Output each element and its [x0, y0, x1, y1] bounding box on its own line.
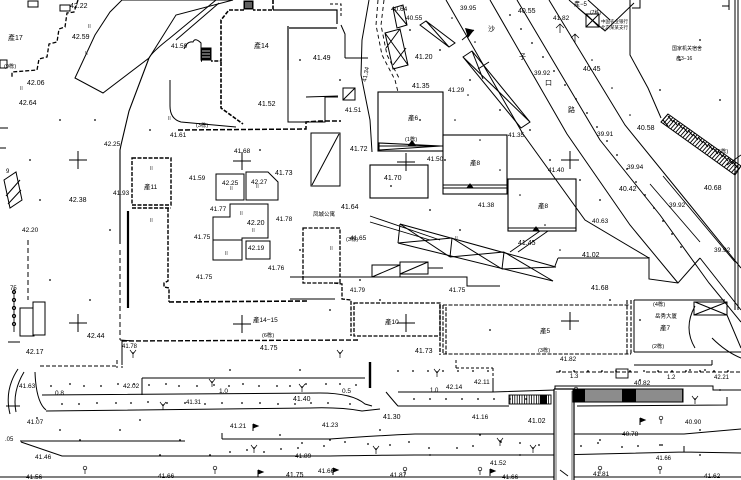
svg-text:41.20: 41.20: [415, 54, 433, 61]
svg-text:40.55: 40.55: [406, 15, 423, 22]
svg-text:41.35: 41.35: [412, 83, 430, 90]
svg-text:42.64: 42.64: [19, 100, 37, 107]
svg-text:41.02: 41.02: [528, 418, 546, 425]
svg-text:產7: 產7: [660, 323, 671, 332]
svg-text:42.14: 42.14: [446, 384, 463, 391]
svg-text:40.58: 40.58: [637, 125, 655, 132]
svg-text:41.63: 41.63: [19, 383, 36, 390]
svg-text:II: II: [230, 186, 233, 192]
svg-text:41.07: 41.07: [27, 419, 44, 426]
svg-text:42.25: 42.25: [104, 141, 121, 148]
svg-text:41.68: 41.68: [591, 285, 609, 292]
svg-text:41.59: 41.59: [189, 175, 206, 182]
svg-text:40.55: 40.55: [518, 8, 536, 15]
svg-text:39.91: 39.91: [597, 131, 614, 138]
svg-text:41.46: 41.46: [35, 454, 52, 461]
svg-text:0.8: 0.8: [55, 390, 64, 397]
svg-text:II: II: [85, 51, 88, 57]
svg-text:41.89: 41.89: [295, 453, 312, 460]
svg-text:40.42: 40.42: [619, 186, 637, 193]
svg-text:0.5: 0.5: [342, 388, 351, 395]
svg-text:41.78: 41.78: [122, 344, 138, 350]
svg-text:沙: 沙: [488, 25, 495, 33]
svg-text:41.29: 41.29: [448, 87, 465, 94]
svg-text:1.3: 1.3: [570, 374, 579, 380]
svg-text:II: II: [150, 218, 153, 224]
svg-text:42.20: 42.20: [22, 227, 39, 234]
svg-text:(3栋): (3栋): [346, 235, 358, 243]
svg-text:42.44: 42.44: [87, 333, 105, 340]
svg-text:41.56: 41.56: [26, 474, 43, 480]
svg-text:41.49: 41.49: [313, 55, 331, 62]
svg-text:產14: 產14: [254, 41, 269, 50]
svg-text:41.31: 41.31: [186, 400, 202, 406]
svg-text:(3栋): (3栋): [196, 121, 208, 129]
svg-text:41.45: 41.45: [518, 240, 536, 247]
svg-text:41.72: 41.72: [350, 146, 368, 153]
svg-text:40.68: 40.68: [704, 185, 722, 192]
svg-text:42.06: 42.06: [27, 80, 45, 87]
svg-text:II: II: [88, 24, 91, 30]
svg-text:41.75: 41.75: [194, 234, 211, 241]
svg-text:41.61: 41.61: [170, 132, 187, 139]
svg-text:41.66: 41.66: [318, 468, 335, 475]
svg-text:42.11: 42.11: [474, 379, 490, 386]
svg-text:40.45: 40.45: [583, 66, 601, 73]
svg-text:41.77: 41.77: [210, 206, 227, 213]
svg-text:41.87: 41.87: [390, 472, 407, 479]
svg-text:41.66: 41.66: [656, 456, 672, 462]
svg-text:II: II: [20, 86, 23, 92]
svg-text:41.30: 41.30: [383, 414, 401, 421]
svg-text:41.40: 41.40: [293, 396, 311, 403]
svg-text:42.02: 42.02: [123, 383, 140, 390]
svg-text:口: 口: [545, 79, 552, 87]
svg-text:42.19: 42.19: [248, 245, 265, 252]
svg-text:產17: 產17: [8, 33, 23, 42]
svg-text:41.21: 41.21: [230, 423, 247, 430]
svg-text:(2栋): (2栋): [652, 342, 664, 350]
svg-text:II: II: [256, 184, 259, 190]
svg-text:75: 75: [10, 286, 17, 292]
svg-text:39.92: 39.92: [714, 247, 731, 254]
svg-text:II: II: [168, 116, 171, 122]
svg-text:39.95: 39.95: [460, 5, 477, 12]
svg-text:41.75: 41.75: [286, 472, 304, 479]
svg-text:II: II: [252, 228, 255, 234]
svg-text:国家机关宿舍: 国家机关宿舍: [672, 45, 702, 52]
svg-text:1.0: 1.0: [219, 388, 228, 395]
svg-text:41.66: 41.66: [502, 474, 519, 480]
svg-text:(1栋): (1栋): [405, 135, 417, 143]
svg-text:40.78: 40.78: [622, 431, 639, 438]
svg-text:40.64: 40.64: [391, 6, 408, 13]
svg-text:產8: 產8: [470, 158, 481, 167]
svg-text:42.38: 42.38: [69, 197, 87, 204]
svg-text:41.79: 41.79: [350, 288, 366, 294]
svg-text:42.27: 42.27: [251, 179, 268, 186]
svg-text:岳秀大厦: 岳秀大厦: [655, 312, 678, 320]
svg-text:II: II: [455, 236, 458, 242]
svg-text:41.82: 41.82: [553, 15, 570, 22]
svg-text:41.75: 41.75: [260, 345, 278, 352]
svg-text:II: II: [240, 211, 243, 217]
svg-text:41.75: 41.75: [449, 287, 466, 294]
svg-text:路: 路: [568, 105, 575, 114]
svg-text:41.02: 41.02: [582, 252, 600, 259]
svg-text:41.51: 41.51: [345, 107, 362, 114]
svg-text:子: 子: [519, 53, 526, 61]
svg-text:41.52: 41.52: [490, 460, 507, 467]
svg-text:1.0: 1.0: [430, 388, 439, 394]
svg-text:北京某某支行: 北京某某支行: [601, 24, 628, 31]
svg-text:40.90: 40.90: [685, 419, 702, 426]
svg-text:41.62: 41.62: [704, 473, 721, 480]
svg-text:39.92: 39.92: [534, 70, 551, 77]
svg-text:產14−15: 產14−15: [253, 315, 278, 324]
svg-text:產8: 產8: [538, 201, 549, 210]
svg-text:II: II: [225, 251, 228, 257]
svg-text:(7栋): (7栋): [590, 9, 601, 16]
svg-text:42.22: 42.22: [70, 3, 88, 10]
svg-text:(6栋): (6栋): [262, 331, 274, 339]
svg-text:40.82: 40.82: [634, 380, 651, 387]
svg-text:II: II: [150, 166, 153, 172]
svg-text:41.52: 41.52: [258, 101, 276, 108]
svg-text:41.38: 41.38: [478, 202, 495, 209]
svg-text:(3栋): (3栋): [538, 346, 550, 354]
svg-text:39.94: 39.94: [627, 164, 644, 171]
svg-text:產5: 產5: [540, 326, 551, 335]
svg-text:41.75: 41.75: [196, 274, 213, 281]
svg-text:41.78: 41.78: [276, 216, 293, 223]
svg-text:41.73: 41.73: [415, 348, 433, 355]
svg-text:(4栋): (4栋): [653, 300, 665, 308]
svg-text:39.92: 39.92: [669, 202, 686, 209]
svg-text:41.40: 41.40: [548, 167, 565, 174]
svg-text:41.73: 41.73: [275, 170, 293, 177]
svg-text:41.81: 41.81: [593, 471, 610, 478]
svg-text:II: II: [330, 246, 333, 252]
svg-text:41.16: 41.16: [472, 414, 489, 421]
svg-text:41.64: 41.64: [341, 204, 359, 211]
svg-text:產6: 產6: [408, 113, 419, 122]
svg-text:(9栋): (9栋): [4, 62, 16, 70]
svg-text:42.20: 42.20: [247, 220, 265, 227]
svg-text:41.93: 41.93: [113, 190, 130, 197]
svg-text:42.17: 42.17: [26, 349, 44, 356]
svg-text:41.23: 41.23: [322, 422, 339, 429]
svg-text:凤城公寓: 凤城公寓: [313, 210, 336, 218]
svg-text:1.2: 1.2: [667, 375, 676, 381]
svg-text:40.63: 40.63: [592, 218, 609, 225]
svg-text:產10: 產10: [385, 317, 399, 326]
svg-text:產11: 產11: [144, 182, 158, 191]
svg-text:.05: .05: [5, 437, 14, 443]
svg-text:42.59: 42.59: [72, 34, 90, 41]
svg-text:42.21: 42.21: [714, 375, 730, 381]
svg-text:41.70: 41.70: [384, 175, 402, 182]
svg-text:41.66: 41.66: [158, 473, 175, 480]
svg-text:中国农业银行: 中国农业银行: [601, 18, 628, 25]
svg-text:產−5: 產−5: [574, 0, 588, 8]
svg-text:41.35: 41.35: [508, 132, 525, 139]
svg-text:41.59: 41.59: [171, 43, 188, 50]
svg-text:41.76: 41.76: [268, 265, 285, 272]
svg-text:(5栋): (5栋): [716, 147, 728, 155]
svg-text:41.82: 41.82: [560, 356, 577, 363]
svg-text:產3−16: 產3−16: [676, 55, 692, 62]
svg-text:41.50: 41.50: [427, 156, 444, 163]
